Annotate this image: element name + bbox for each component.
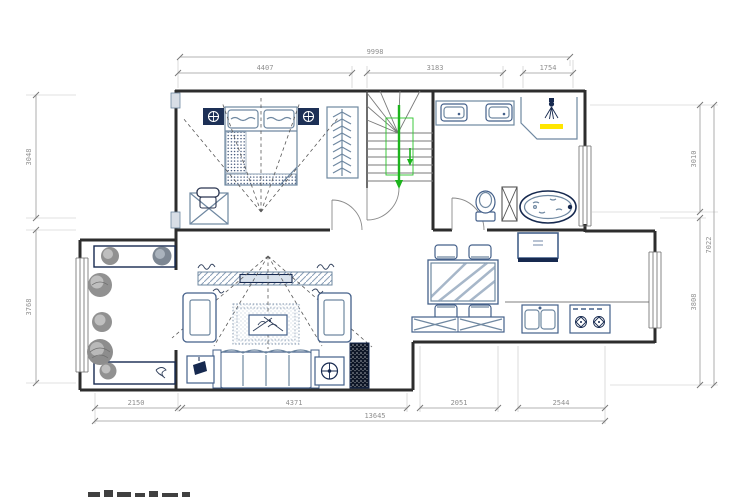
tv-cabinet [198, 272, 332, 285]
stairs-door [367, 188, 399, 220]
plant-icon [100, 363, 117, 380]
fridge [518, 233, 558, 262]
shower-highlight [540, 124, 563, 129]
tv [240, 275, 292, 283]
winder-treads [367, 91, 420, 133]
dim-right-overall: 7022 [705, 237, 713, 254]
vanity-double-basin [436, 101, 514, 125]
doors [332, 188, 484, 230]
floor-plan-canvas: 9998 4407 3183 1754 2150 4371 2051 2544 … [0, 0, 740, 497]
side-table-right-with-lamp [315, 357, 344, 385]
dining-area [412, 245, 504, 332]
floor-plan-svg: 9998 4407 3183 1754 2150 4371 2051 2544 … [0, 0, 740, 497]
blanket-texture [226, 132, 246, 173]
dim-top-overall: 9998 [367, 48, 384, 56]
sofa [213, 350, 319, 388]
dim-right-seg2: 3808 [690, 294, 698, 311]
dining-chair [435, 245, 457, 259]
stove [570, 305, 610, 333]
wardrobe [327, 107, 358, 178]
plant-screen [350, 343, 369, 388]
dim-bottom-seg2: 4371 [286, 399, 303, 407]
dining-chair [469, 245, 491, 259]
cropped-text-artifact [88, 490, 190, 497]
bathroom [436, 97, 577, 223]
shower-head-icon [545, 98, 558, 119]
bath-window [579, 146, 591, 226]
decor-scribble [198, 264, 215, 269]
plant-icon [101, 247, 119, 265]
plant-icon [87, 339, 113, 365]
kitchen-window [649, 252, 661, 328]
dim-left-seg1: 3048 [25, 149, 33, 166]
decor-scribble [317, 264, 334, 269]
tub-faucet-icon [568, 205, 572, 209]
wall-pier [171, 93, 180, 108]
dim-top-seg2: 3183 [427, 64, 444, 72]
armchair-left [183, 293, 216, 342]
bathtub [520, 191, 576, 223]
plant-icon [153, 247, 172, 266]
armchair-right [318, 293, 351, 342]
desk-chair [197, 188, 219, 197]
table-plant-icon [269, 320, 271, 322]
plant-icon [92, 312, 112, 332]
duct-column [502, 187, 517, 221]
coffee-table [249, 315, 287, 335]
toilet [476, 191, 495, 221]
kitchen [505, 233, 649, 333]
balcony [87, 246, 175, 384]
nightstand-right-with-lamp-icon [298, 108, 319, 125]
shower-stall [521, 97, 577, 139]
plant-icon [88, 273, 112, 297]
decor-scribble [312, 289, 323, 293]
living-room [172, 256, 372, 388]
dim-bottom-seg3: 2051 [451, 399, 468, 407]
stairs-down-arrow-icon [395, 180, 403, 189]
balcony-window [76, 258, 88, 372]
dim-top-seg3: 1754 [540, 64, 557, 72]
sideboard [412, 317, 504, 332]
sink-faucet-icon [539, 307, 542, 310]
staircase [367, 91, 433, 189]
kitchen-sink [522, 305, 558, 333]
decor-scribble [213, 289, 224, 293]
dim-bottom-overall: 13645 [364, 412, 385, 420]
wall-pier [171, 212, 180, 228]
dim-bottom-seg1: 2150 [128, 399, 145, 407]
dining-table [428, 260, 498, 304]
dim-right-seg1: 3010 [690, 151, 698, 168]
side-table-left-with-lamp [187, 356, 214, 383]
dim-left-seg2: 3768 [25, 299, 33, 316]
desk-with-chair [190, 188, 228, 224]
nightstand-left-with-lamp-icon [203, 108, 224, 125]
dim-top-seg1: 4407 [257, 64, 274, 72]
bedroom-door [332, 200, 362, 230]
dim-bottom-seg4: 2544 [553, 399, 570, 407]
